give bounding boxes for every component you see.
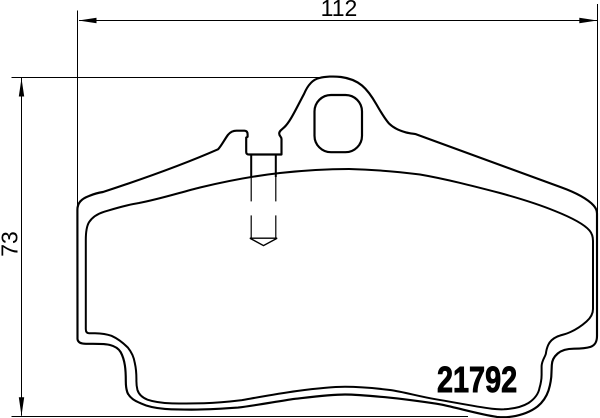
svg-text:112: 112 [321, 0, 358, 21]
svg-text:21792: 21792 [437, 359, 517, 400]
svg-text:73: 73 [0, 231, 23, 257]
